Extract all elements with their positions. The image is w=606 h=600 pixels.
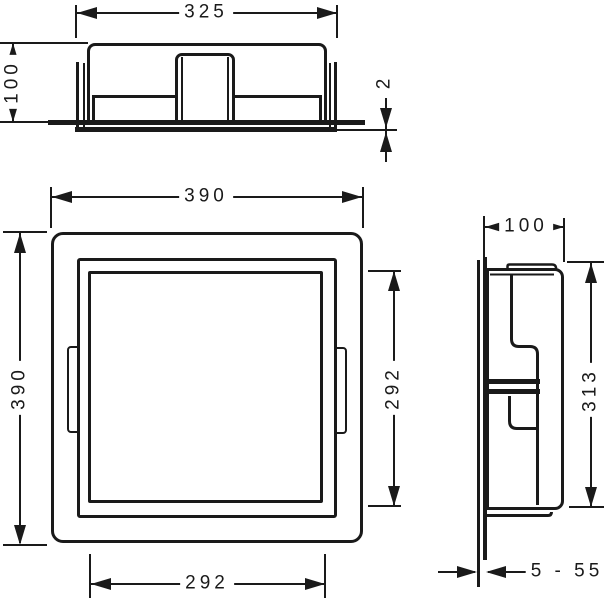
dim-label-390-top: 390 — [179, 187, 233, 208]
top-clip-left-inner — [83, 63, 85, 127]
dim-label-325: 325 — [179, 3, 233, 24]
side-tile-line — [477, 260, 480, 587]
dim-label-292-bottom: 292 — [180, 574, 234, 595]
dim-292right-arrow-up — [388, 271, 400, 291]
dim-390top-ext-right — [362, 187, 364, 228]
top-clip-left-outer — [76, 62, 79, 127]
dim-325-arrow-right — [317, 7, 337, 19]
dim-2-arrow-down — [380, 108, 392, 128]
dim-label-313: 313 — [581, 363, 602, 417]
dim-292bottom-arrow-left — [91, 578, 111, 590]
dim-292bottom-arrow-right — [305, 578, 325, 590]
top-tab-line-left — [181, 57, 183, 123]
dim-390left-arrow-down — [14, 525, 26, 545]
top-mount-tab — [175, 53, 235, 123]
dim-292right-arrow-down — [388, 486, 400, 506]
dim-label-100-side: 100 — [499, 217, 553, 238]
top-tab-line-right — [227, 57, 229, 123]
dim-label-5-55: 5 - 55 — [526, 562, 606, 583]
front-opening — [88, 271, 323, 503]
dim-390top-arrow-left — [52, 191, 72, 203]
dim-label-292-right: 292 — [384, 361, 405, 415]
dim-555-arrow-left — [486, 566, 506, 578]
dim-390left-arrow-up — [14, 233, 26, 253]
dim-label-390-left: 390 — [10, 361, 31, 415]
top-inner-left-line — [92, 95, 95, 122]
top-tile-line — [48, 120, 365, 125]
dim-label-2: 2 — [375, 70, 396, 95]
top-inner-right-line — [319, 95, 322, 122]
top-flange-ext-line — [337, 129, 397, 131]
dimension-drawing: 325 100 2 390 390 — [0, 0, 606, 600]
top-clip-right-inner — [329, 63, 331, 127]
dim-555-arrow-right — [457, 566, 477, 578]
top-flange-line — [75, 127, 337, 132]
dim-292bottom-ext-right — [324, 554, 326, 598]
dim-292bottom-ext-left — [89, 554, 91, 598]
dim-2-arrow-up — [380, 132, 392, 152]
dim-313-arrow-up — [585, 263, 597, 283]
side-body-details — [486, 256, 566, 522]
top-clip-right-outer — [334, 62, 337, 127]
dim-label-100-top: 100 — [3, 55, 24, 109]
dim-313-arrow-down — [585, 487, 597, 507]
dim-325-arrow-left — [77, 7, 97, 19]
dim-390top-arrow-right — [342, 191, 362, 203]
